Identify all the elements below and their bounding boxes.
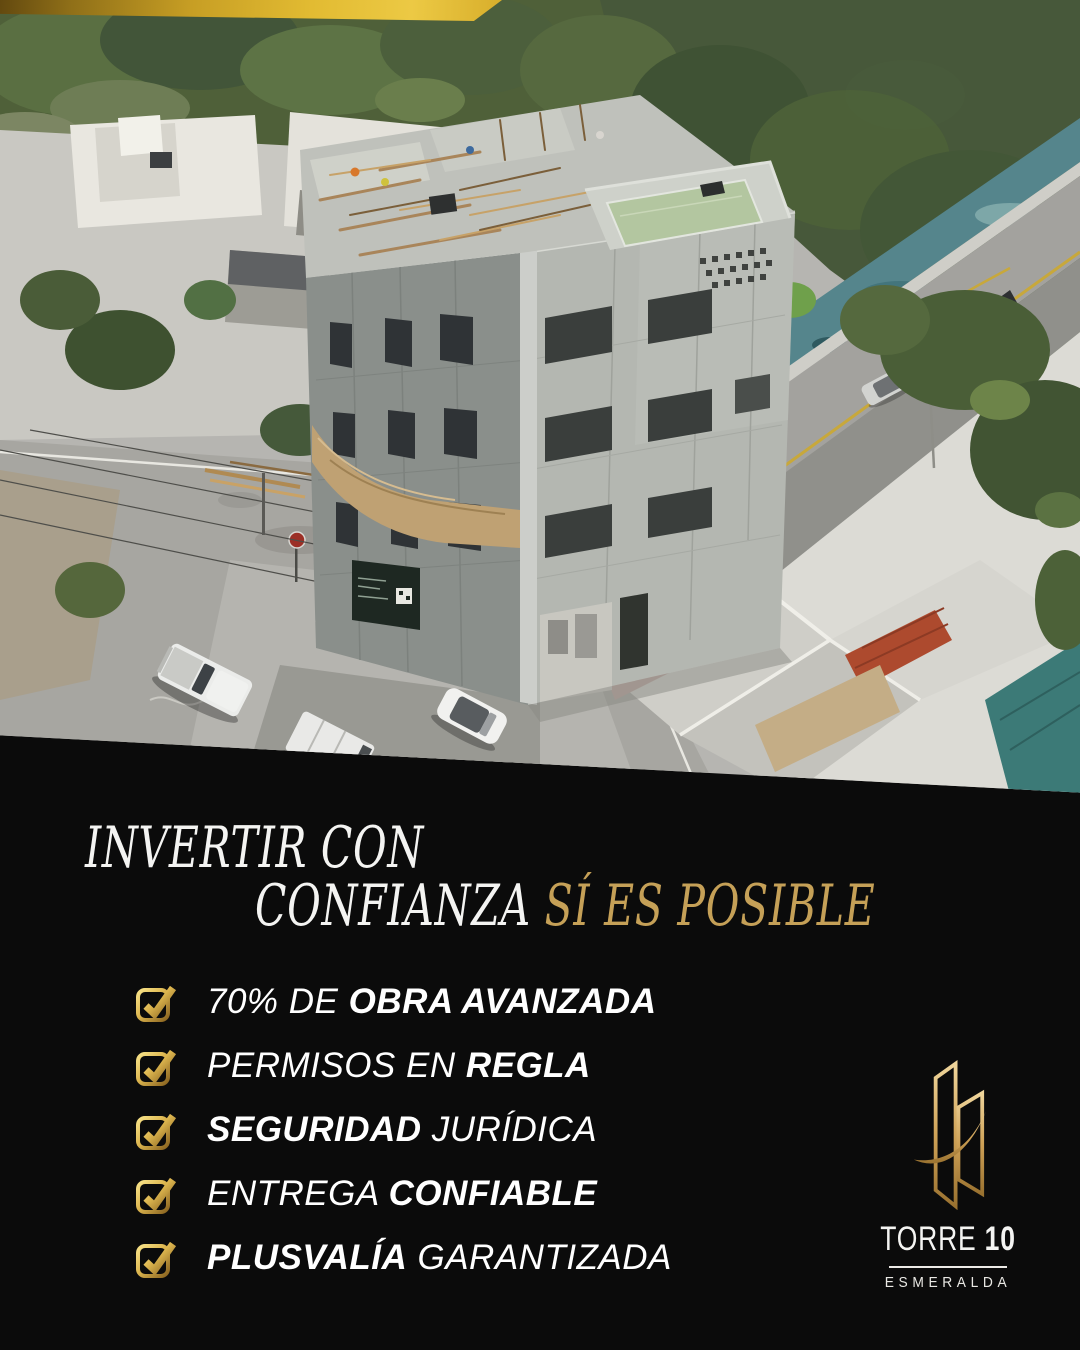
poster: INVERTIR CON CONFIANZA SÍ ES POSIBLE 70%… [0, 0, 1080, 1350]
brand-subtitle: ESMERALDA [847, 1274, 1049, 1291]
emblem-right-tower [958, 1093, 982, 1194]
brand-block: TORRE 10 ESMERALDA [838, 1058, 1058, 1291]
headline: INVERTIR CON CONFIANZA SÍ ES POSIBLE [85, 820, 1080, 935]
brand-title: TORRE 10 [862, 1220, 1034, 1259]
aerial-construction-photo [0, 0, 1080, 795]
headline-line-2: CONFIANZA SÍ ES POSIBLE [255, 878, 1080, 935]
checklist-text-segment: PERMISOS EN [207, 1046, 466, 1085]
checklist-item: 70% DE OBRA AVANZADA [133, 981, 672, 1025]
checklist-item: ENTREGA CONFIABLE [133, 1173, 672, 1217]
checklist-item: SEGURIDAD JURÍDICA [133, 1109, 672, 1153]
headline-line2-gold: SÍ ES POSIBLE [545, 873, 876, 939]
emblem-left-tower [936, 1064, 956, 1207]
checkbox-check-icon [133, 980, 179, 1026]
brand-divider [889, 1266, 1007, 1268]
checklist: 70% DE OBRA AVANZADA PERMISOS EN REGLA S… [133, 981, 672, 1301]
checklist-text-segment: SEGURIDAD [207, 1110, 422, 1149]
checklist-text-segment: ENTREGA [207, 1174, 389, 1213]
checklist-item: PERMISOS EN REGLA [133, 1045, 672, 1089]
checklist-text-segment: PLUSVALÍA [207, 1238, 407, 1277]
checklist-item: PLUSVALÍA GARANTIZADA [133, 1237, 672, 1281]
emblem-swoosh [914, 1111, 986, 1163]
checklist-text-segment: CONFIABLE [389, 1174, 598, 1213]
headline-line-1: INVERTIR CON [85, 820, 1080, 877]
headline-line2-white: CONFIANZA [255, 873, 531, 939]
worker [466, 146, 474, 154]
worker [381, 178, 389, 186]
checklist-text: SEGURIDAD JURÍDICA [207, 1110, 597, 1152]
checklist-text-segment: JURÍDICA [422, 1110, 598, 1149]
checklist-text: PLUSVALÍA GARANTIZADA [207, 1238, 672, 1280]
checklist-text: 70% DE OBRA AVANZADA [207, 982, 657, 1024]
checklist-text: PERMISOS EN REGLA [207, 1046, 591, 1088]
checkbox-check-icon [133, 1172, 179, 1218]
checkbox-check-icon [133, 1044, 179, 1090]
checkbox-check-icon [133, 1236, 179, 1282]
checklist-text-segment: OBRA AVANZADA [349, 982, 657, 1021]
checklist-text-segment: GARANTIZADA [407, 1238, 672, 1277]
checklist-text-segment: 70% DE [207, 982, 349, 1021]
worker [351, 168, 360, 177]
checklist-text-segment: REGLA [466, 1046, 591, 1085]
checklist-text: ENTREGA CONFIABLE [207, 1174, 597, 1216]
construction-site-scene [0, 0, 1080, 795]
worker [596, 131, 604, 139]
checkbox-check-icon [133, 1108, 179, 1154]
torre10-emblem-icon [900, 1058, 996, 1210]
construction-sign [352, 560, 420, 630]
